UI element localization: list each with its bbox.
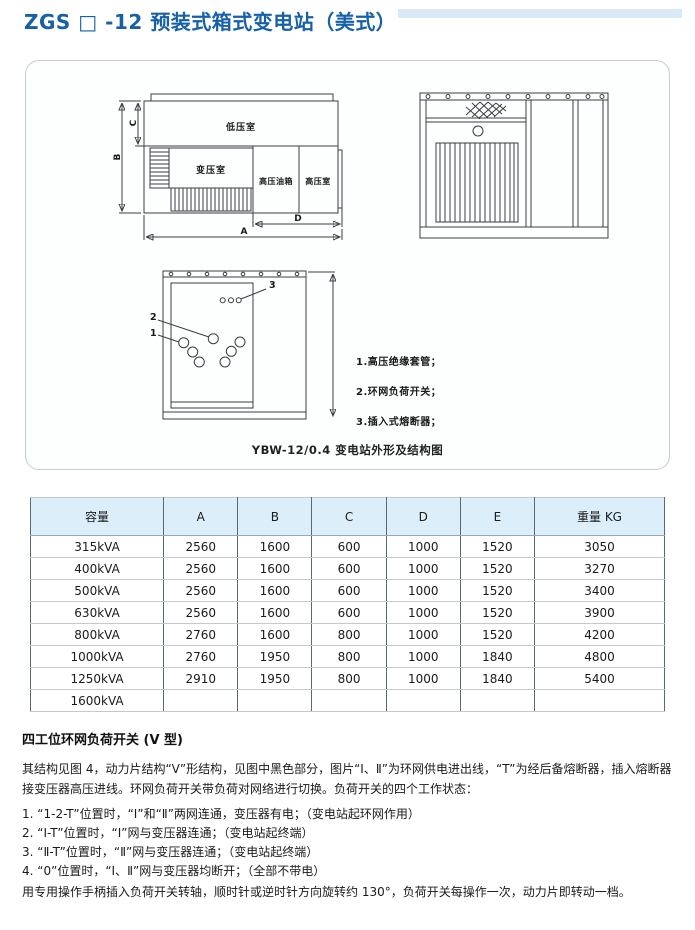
table-cell: 1840	[460, 668, 534, 690]
plan-hatch-left	[150, 148, 169, 188]
figure-legend: 1.高压绝缘套管；2.环网负荷开关；3.插入式熔断器；	[356, 353, 441, 443]
page: ZGS □ -12 预装式箱式变电站（美式）	[0, 0, 695, 930]
floor-plan-drawing: 低压室 变压室 高压油箱 高压室 B C D A	[111, 83, 371, 245]
table-row: 1000kVA27601950800100018404800	[31, 646, 665, 668]
table-cell: 800	[312, 646, 386, 668]
switch-section: 四工位环网负荷开关 (V 型) 其结构见图 4，动力片结构“V”形结构，见图中黑…	[22, 729, 677, 902]
table-cell: 1600	[238, 536, 312, 558]
table-cell: 600	[312, 580, 386, 602]
dim-label-a: A	[241, 227, 248, 237]
page-header: ZGS □ -12 预装式箱式变电站（美式）	[0, 0, 695, 46]
table-cell: 1950	[238, 646, 312, 668]
table-cell: 1520	[460, 624, 534, 646]
table-cell: 2760	[164, 646, 238, 668]
table-cell	[164, 690, 238, 712]
callout-label-1: 1	[150, 328, 157, 339]
table-cell	[238, 690, 312, 712]
legend-item: 1.高压绝缘套管；	[356, 353, 441, 368]
table-cell: 400kVA	[31, 558, 164, 580]
table-header-cell: B	[238, 498, 312, 536]
table-cell: 2560	[164, 558, 238, 580]
table-cell: 1600	[238, 602, 312, 624]
table-cell: 1600kVA	[31, 690, 164, 712]
table-cell: 1250kVA	[31, 668, 164, 690]
table-cell: 5400	[534, 668, 664, 690]
table-cell: 600	[312, 536, 386, 558]
table-cell: 800	[312, 624, 386, 646]
table-cell: 1000kVA	[31, 646, 164, 668]
elevation-roof-bolts	[426, 95, 604, 99]
table-cell: 315kVA	[31, 536, 164, 558]
switch-state-item: 2. “Ⅰ-T”位置时，“Ⅰ”网与变压器连通；（变电站起终端）	[22, 824, 677, 843]
table-cell: 500kVA	[31, 580, 164, 602]
switch-state-item: 1. “1-2-T”位置时，“Ⅰ”和“Ⅱ”两网连通，变压器有电；（变电站起环网作…	[22, 805, 677, 824]
table-cell: 2760	[164, 624, 238, 646]
hv-bushing-circles	[179, 334, 245, 367]
table-cell: 630kVA	[31, 602, 164, 624]
table-header-cell: 容量	[31, 498, 164, 536]
table-cell: 4800	[534, 646, 664, 668]
table-cell	[460, 690, 534, 712]
switch-state-item: 3. “Ⅱ-T”位置时，“Ⅱ”网与变压器连通；（变电站起终端）	[22, 843, 677, 862]
room-label-hv-room: 高压室	[305, 176, 331, 186]
table-cell: 1000	[386, 558, 460, 580]
table-cell: 1000	[386, 624, 460, 646]
room-label-hv-oil-tank: 高压油箱	[259, 176, 293, 186]
table-cell: 1520	[460, 536, 534, 558]
table-cell: 1950	[238, 668, 312, 690]
table-cell: 3270	[534, 558, 664, 580]
switch-state-list: 1. “1-2-T”位置时，“Ⅰ”和“Ⅱ”两网连通，变压器有电；（变电站起环网作…	[22, 805, 677, 881]
table-cell: 2560	[164, 536, 238, 558]
fuse-circles	[220, 298, 241, 303]
callout-label-3: 3	[269, 280, 276, 291]
table-cell	[534, 690, 664, 712]
table-cell: 2560	[164, 580, 238, 602]
table-cell: 2560	[164, 602, 238, 624]
legend-item: 2.环网负荷开关；	[356, 383, 441, 398]
title-accent-bar	[398, 9, 682, 18]
table-cell: 600	[312, 602, 386, 624]
plan-door-protrusion	[338, 150, 342, 208]
switch-section-intro: 其结构见图 4，动力片结构“V”形结构，见图中黑色部分，图片“Ⅰ、Ⅱ”为环网供电…	[22, 759, 677, 799]
switch-state-item: 4. “0”位置时，“Ⅰ、Ⅱ”网与变压器均断开；（全部不带电）	[22, 862, 677, 881]
table-cell: 800kVA	[31, 624, 164, 646]
table-cell: 1520	[460, 558, 534, 580]
figure-caption: YBW-12/0.4 变电站外形及结构图	[26, 442, 669, 458]
elevation-lock-knob	[473, 126, 483, 136]
vent-grille-icon	[466, 102, 506, 119]
spec-table-body: 315kVA25601600600100015203050400kVA25601…	[31, 536, 665, 712]
plan-hatch-bottom	[171, 188, 251, 211]
room-label-transformer: 变压室	[196, 164, 226, 176]
table-row: 400kVA25601600600100015203270	[31, 558, 665, 580]
table-header-cell: D	[386, 498, 460, 536]
table-cell: 1600	[238, 558, 312, 580]
table-header-cell: 重量 KG	[534, 498, 664, 536]
table-row: 315kVA25601600600100015203050	[31, 536, 665, 558]
table-cell: 2910	[164, 668, 238, 690]
table-cell: 1000	[386, 536, 460, 558]
table-cell: 600	[312, 558, 386, 580]
structure-drawing: 3 2 1	[146, 263, 356, 428]
callout-label-2: 2	[150, 312, 157, 323]
table-cell: 4200	[534, 624, 664, 646]
structure-roof-hooks	[169, 272, 299, 276]
table-row: 1250kVA29101950800100018405400	[31, 668, 665, 690]
table-row: 800kVA27601600800100015204200	[31, 624, 665, 646]
table-cell	[312, 690, 386, 712]
table-cell: 1840	[460, 646, 534, 668]
room-label-low-voltage: 低压室	[225, 121, 256, 133]
table-header-cell: A	[164, 498, 238, 536]
page-title: ZGS □ -12 预装式箱式变电站（美式）	[24, 6, 396, 35]
table-cell: 1600	[238, 624, 312, 646]
spec-table-header-row: 容量ABCDE重量 KG	[31, 498, 665, 536]
table-row: 630kVA25601600600100015203900	[31, 602, 665, 624]
table-cell: 3900	[534, 602, 664, 624]
table-cell: 1000	[386, 668, 460, 690]
legend-item: 3.插入式熔断器；	[356, 413, 441, 428]
table-row: 1600kVA	[31, 690, 665, 712]
table-cell: 3050	[534, 536, 664, 558]
table-header-cell: C	[312, 498, 386, 536]
spec-table: 容量ABCDE重量 KG 315kVA256016006001000152030…	[30, 497, 665, 712]
table-header-cell: E	[460, 498, 534, 536]
table-row: 500kVA25601600600100015203400	[31, 580, 665, 602]
table-cell: 1520	[460, 602, 534, 624]
dim-label-b: B	[113, 153, 123, 160]
switch-section-footer: 用专用操作手柄插入负荷开关转轴，顺时针或逆时针方向旋转约 130°，负荷开关每操…	[22, 883, 677, 902]
elevation-drawing	[406, 91, 621, 241]
table-cell: 1000	[386, 646, 460, 668]
dim-label-d: D	[294, 214, 301, 224]
plan-roof	[151, 94, 333, 101]
table-cell: 3400	[534, 580, 664, 602]
table-cell: 1000	[386, 580, 460, 602]
table-cell: 800	[312, 668, 386, 690]
table-cell: 1000	[386, 602, 460, 624]
structure-outline	[163, 271, 306, 419]
table-cell: 1600	[238, 580, 312, 602]
elevation-louver-door	[436, 143, 518, 222]
dim-label-c: C	[129, 119, 139, 126]
figure-panel: 低压室 变压室 高压油箱 高压室 B C D A	[25, 60, 670, 470]
switch-section-heading: 四工位环网负荷开关 (V 型)	[22, 729, 677, 748]
table-cell	[386, 690, 460, 712]
table-cell: 1520	[460, 580, 534, 602]
plan-outline	[144, 101, 338, 213]
